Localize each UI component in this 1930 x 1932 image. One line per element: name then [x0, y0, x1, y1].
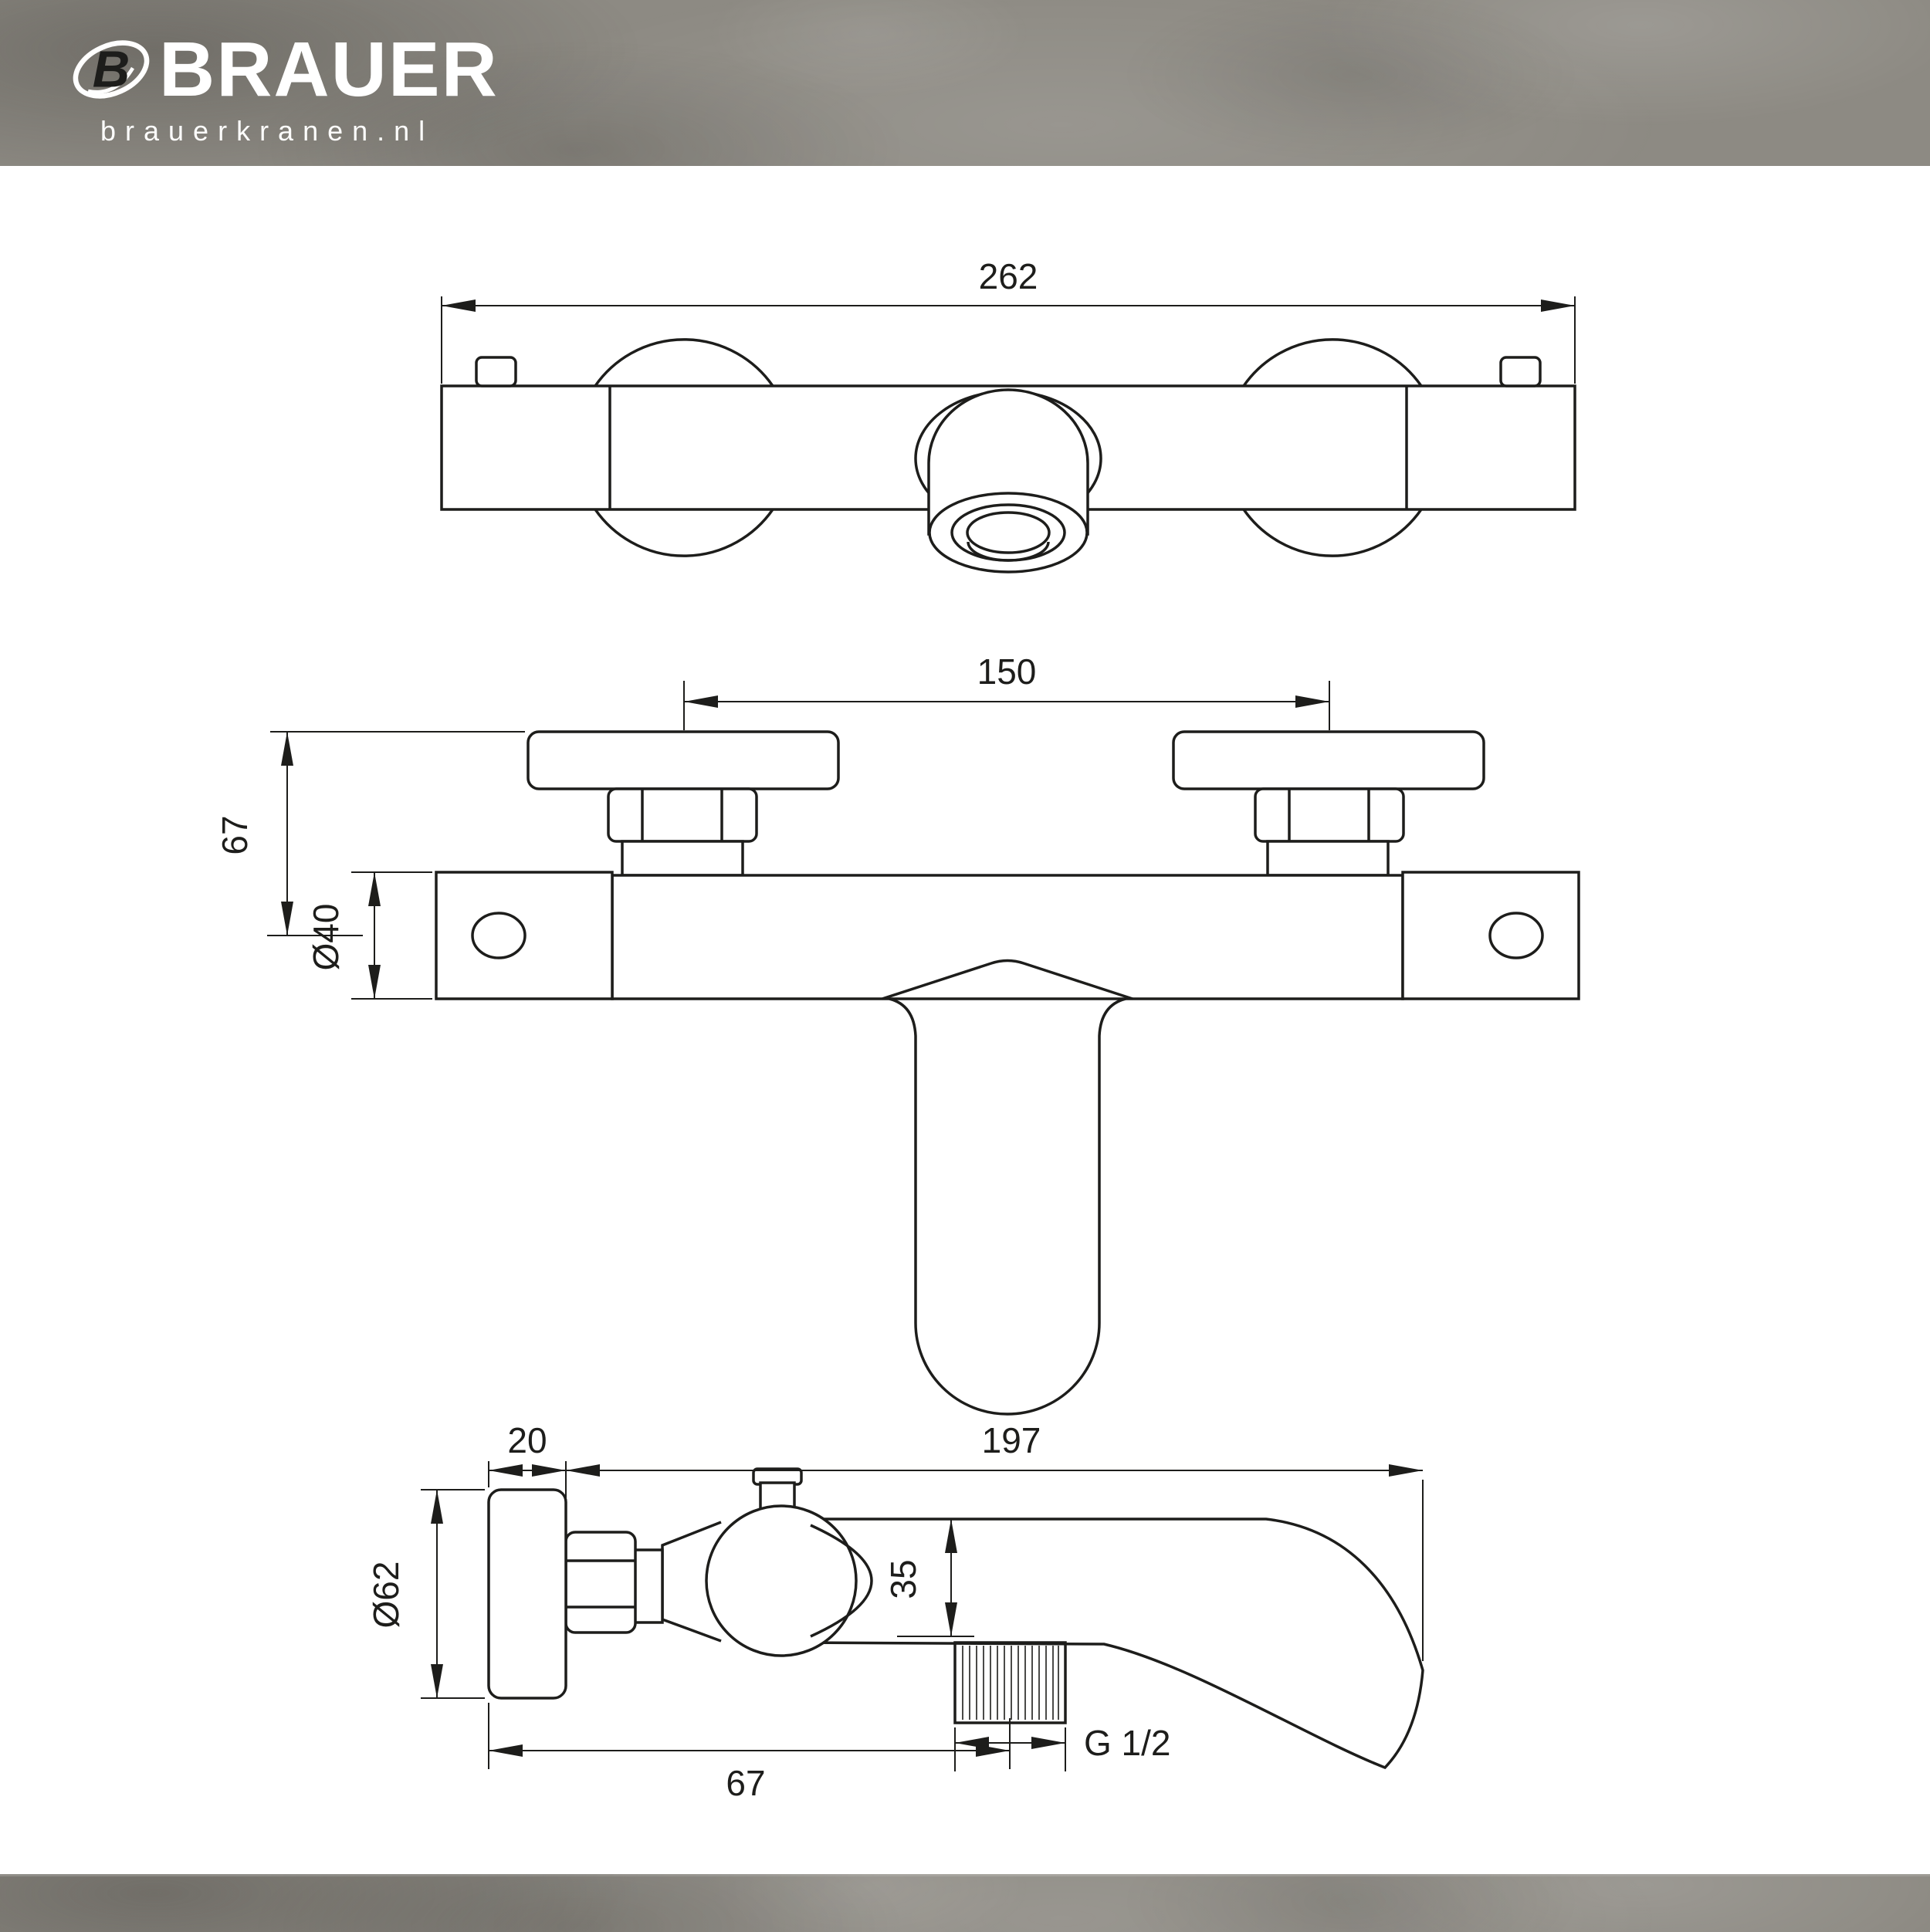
- dim-wall-to-outlet: 67: [726, 1763, 765, 1803]
- right-collar: [1268, 841, 1388, 875]
- side-hex-nut: [566, 1532, 635, 1633]
- dim-handle-diameter: Ø40: [306, 904, 346, 971]
- side-wall-plate: [489, 1490, 566, 1698]
- dim-overall-width: 262: [979, 256, 1038, 296]
- dim-outlet-thread: G 1/2: [1084, 1723, 1171, 1763]
- left-wall-plate: [528, 732, 838, 789]
- right-hex-nut: [1255, 789, 1403, 841]
- right-wall-plate: [1173, 732, 1484, 789]
- outlet-ring-inner: [967, 513, 1049, 553]
- left-screw-cap: [476, 357, 516, 386]
- left-collar: [622, 841, 743, 875]
- valve-cap: [706, 1506, 856, 1656]
- technical-drawing: 262: [0, 0, 1930, 1930]
- dim-connection-spacing: 150: [977, 651, 1037, 692]
- right-screw-cap: [1501, 357, 1540, 386]
- mixer-body: [612, 875, 1403, 999]
- dim-plate-thickness: 20: [507, 1420, 547, 1460]
- dim-body-to-outlet: 35: [883, 1559, 923, 1599]
- dim-plate-diameter: Ø62: [366, 1562, 406, 1629]
- side-collar: [635, 1550, 662, 1622]
- page: { "brand": { "name": "BRAUER", "website"…: [0, 0, 1930, 1930]
- dim-spout-length: 197: [982, 1420, 1041, 1460]
- left-hex-nut: [608, 789, 757, 841]
- dim-plate-to-body-center: 67: [215, 815, 255, 854]
